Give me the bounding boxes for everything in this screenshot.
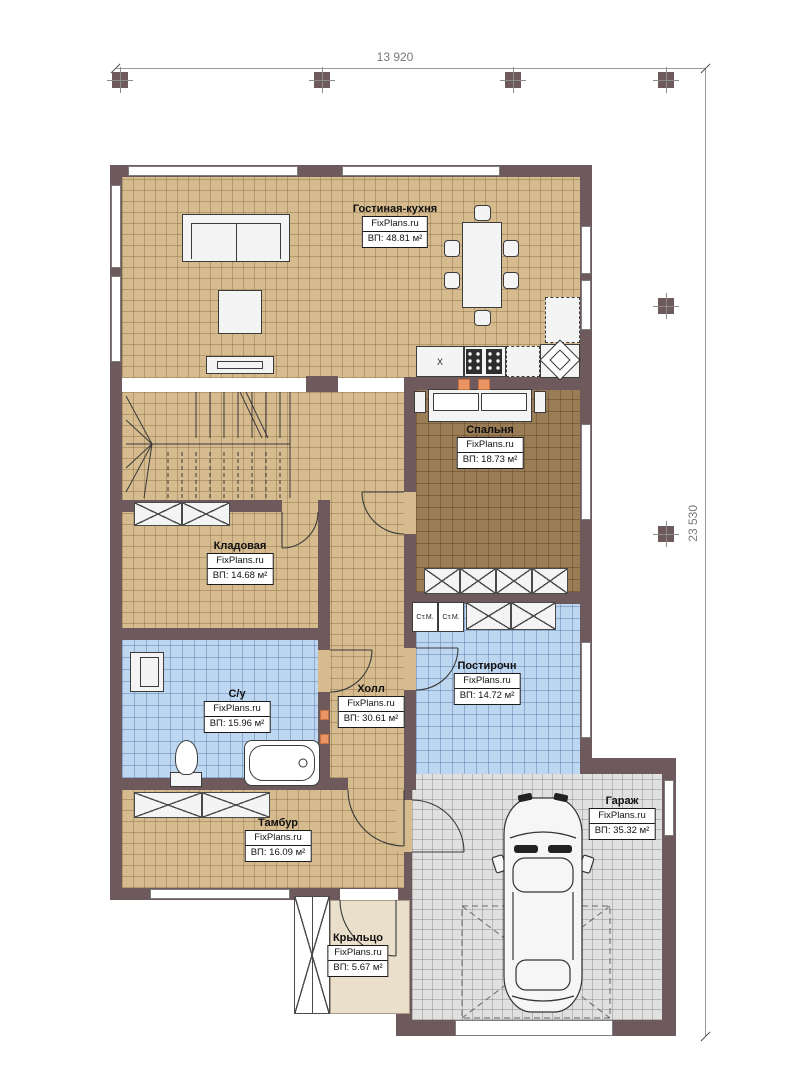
room-area: ВП: 5.67 м²	[328, 961, 387, 975]
room-area: ВП: 35.32 м²	[590, 824, 655, 838]
service-marker	[478, 379, 490, 390]
washing-machine: Ст.М.	[438, 602, 464, 632]
room-label-bedroom: Спальня FixPlans.ru ВП: 18.73 м²	[457, 424, 524, 469]
bathroom-door-opening	[318, 650, 330, 692]
window	[581, 280, 591, 330]
room-area: ВП: 30.61 м²	[339, 712, 404, 726]
room-label-garage: Гараж FixPlans.ru ВП: 35.32 м²	[589, 795, 656, 840]
room-label-box: FixPlans.ru ВП: 5.67 м²	[327, 945, 388, 977]
room-label-box: FixPlans.ru ВП: 14.68 м²	[207, 553, 274, 585]
chair	[444, 272, 460, 289]
room-label-living-kitchen: Гостиная-кухня FixPlans.ru ВП: 48.81 м²	[353, 203, 437, 248]
kitchen-sink-unit: X	[416, 346, 464, 377]
window	[581, 226, 591, 274]
bathtub-inner	[249, 745, 315, 781]
sink-symbol: X	[437, 357, 443, 367]
room-name: Кладовая	[207, 540, 274, 552]
room-label-storage: Кладовая FixPlans.ru ВП: 14.68 м²	[207, 540, 274, 585]
column-marker	[658, 298, 674, 314]
window	[581, 424, 591, 520]
tv-stand	[206, 356, 274, 374]
hall-east-wall	[404, 377, 416, 790]
room-area: ВП: 18.73 м²	[458, 453, 523, 467]
room-name: Гостиная-кухня	[353, 203, 437, 215]
bathroom-sink	[130, 652, 164, 692]
service-marker	[320, 710, 329, 720]
service-marker	[320, 734, 329, 744]
pillar	[306, 376, 338, 392]
washer-label: Ст.М.	[416, 614, 433, 621]
column-marker	[658, 72, 674, 88]
tv	[217, 361, 263, 369]
garage-door-opening	[396, 800, 412, 852]
floor-opening	[122, 378, 306, 392]
bed	[428, 389, 532, 422]
sofa-divider	[236, 223, 237, 261]
window	[150, 889, 290, 899]
column-marker	[112, 72, 128, 88]
room-label-hall: Холл FixPlans.ru ВП: 30.61 м²	[338, 683, 405, 728]
wardrobe	[496, 568, 532, 594]
wardrobe	[511, 602, 556, 630]
laundry-door-opening	[404, 648, 416, 690]
room-name: Постирочн	[454, 660, 521, 672]
wardrobe	[466, 602, 511, 630]
garage-gate-opening	[455, 1020, 613, 1036]
column-marker	[505, 72, 521, 88]
top-dimension-line	[115, 68, 705, 69]
window	[342, 166, 500, 176]
wardrobe	[424, 568, 460, 594]
wardrobe	[134, 792, 202, 818]
room-area: ВП: 48.81 м²	[363, 232, 428, 246]
bedroom-door-opening	[404, 492, 416, 534]
top-dimension-label: 13 920	[350, 50, 440, 64]
window	[111, 185, 121, 268]
washing-machine: Ст.М.	[412, 602, 438, 632]
fridge	[545, 297, 580, 343]
sink-basin	[140, 657, 159, 687]
storage-bathroom-wall	[122, 628, 318, 640]
room-label-tambur: Тамбур FixPlans.ru ВП: 16.09 м²	[245, 817, 312, 862]
brand-watermark: FixPlans.ru	[458, 438, 523, 453]
window	[128, 166, 298, 176]
chair	[474, 205, 491, 221]
brand-watermark: FixPlans.ru	[246, 831, 311, 846]
room-label-box: FixPlans.ru ВП: 30.61 м²	[338, 696, 405, 728]
room-area: ВП: 16.09 м²	[246, 846, 311, 860]
chair	[474, 310, 491, 326]
room-label-box: FixPlans.ru ВП: 14.72 м²	[454, 673, 521, 705]
room-label-box: FixPlans.ru ВП: 15.96 м²	[204, 701, 271, 733]
column-marker	[658, 526, 674, 542]
brand-watermark: FixPlans.ru	[455, 674, 520, 689]
brand-watermark: FixPlans.ru	[205, 702, 270, 717]
floor-plan: 13 920 23 530	[0, 0, 792, 1080]
wardrobe	[532, 568, 568, 594]
bathtub	[244, 740, 320, 786]
room-name: Тамбур	[245, 817, 312, 829]
corner-counter	[540, 344, 580, 378]
coffee-table	[218, 290, 262, 334]
chair	[503, 272, 519, 289]
sofa	[182, 214, 290, 262]
wardrobe	[460, 568, 496, 594]
stove-unit	[464, 346, 506, 377]
room-label-box: FixPlans.ru ВП: 48.81 м²	[362, 216, 429, 248]
column-marker	[314, 72, 330, 88]
brand-watermark: FixPlans.ru	[339, 697, 404, 712]
wardrobe	[182, 502, 230, 526]
window	[664, 780, 674, 836]
room-label-porch: Крыльцо FixPlans.ru ВП: 5.67 м²	[327, 932, 388, 977]
room-label-box: FixPlans.ru ВП: 35.32 м²	[589, 808, 656, 840]
nightstand	[534, 391, 546, 413]
brand-watermark: FixPlans.ru	[328, 946, 387, 961]
brand-watermark: FixPlans.ru	[208, 554, 273, 569]
room-name: Крыльцо	[327, 932, 388, 944]
room-label-laundry: Постирочн FixPlans.ru ВП: 14.72 м²	[454, 660, 521, 705]
pillow	[433, 393, 479, 411]
nightstand	[414, 391, 426, 413]
room-name: Гараж	[589, 795, 656, 807]
room-label-box: FixPlans.ru ВП: 18.73 м²	[457, 437, 524, 469]
porch-step-line	[312, 896, 313, 1014]
wardrobe	[202, 792, 270, 818]
washer-label: Ст.М.	[442, 614, 459, 621]
room-label-box: FixPlans.ru ВП: 16.09 м²	[245, 830, 312, 862]
wardrobe	[134, 502, 182, 526]
service-marker	[458, 379, 470, 390]
chair	[444, 240, 460, 257]
right-dimension-line	[705, 68, 706, 1036]
room-name: С/у	[204, 688, 271, 700]
room-area: ВП: 14.68 м²	[208, 569, 273, 583]
window	[111, 276, 121, 362]
counter-unit	[506, 346, 540, 377]
right-dimension-label: 23 530	[686, 505, 700, 542]
toilet-bowl	[175, 740, 198, 775]
floor-opening	[338, 378, 404, 392]
room-area: ВП: 15.96 м²	[205, 717, 270, 731]
brand-watermark: FixPlans.ru	[590, 809, 655, 824]
chair	[503, 240, 519, 257]
pillow	[481, 393, 527, 411]
room-area: ВП: 14.72 м²	[455, 689, 520, 703]
window	[581, 642, 591, 738]
front-door-opening	[340, 889, 398, 900]
room-label-bathroom: С/у FixPlans.ru ВП: 15.96 м²	[204, 688, 271, 733]
room-name: Холл	[338, 683, 405, 695]
brand-watermark: FixPlans.ru	[363, 217, 428, 232]
dining-table	[462, 222, 502, 308]
room-name: Спальня	[457, 424, 524, 436]
